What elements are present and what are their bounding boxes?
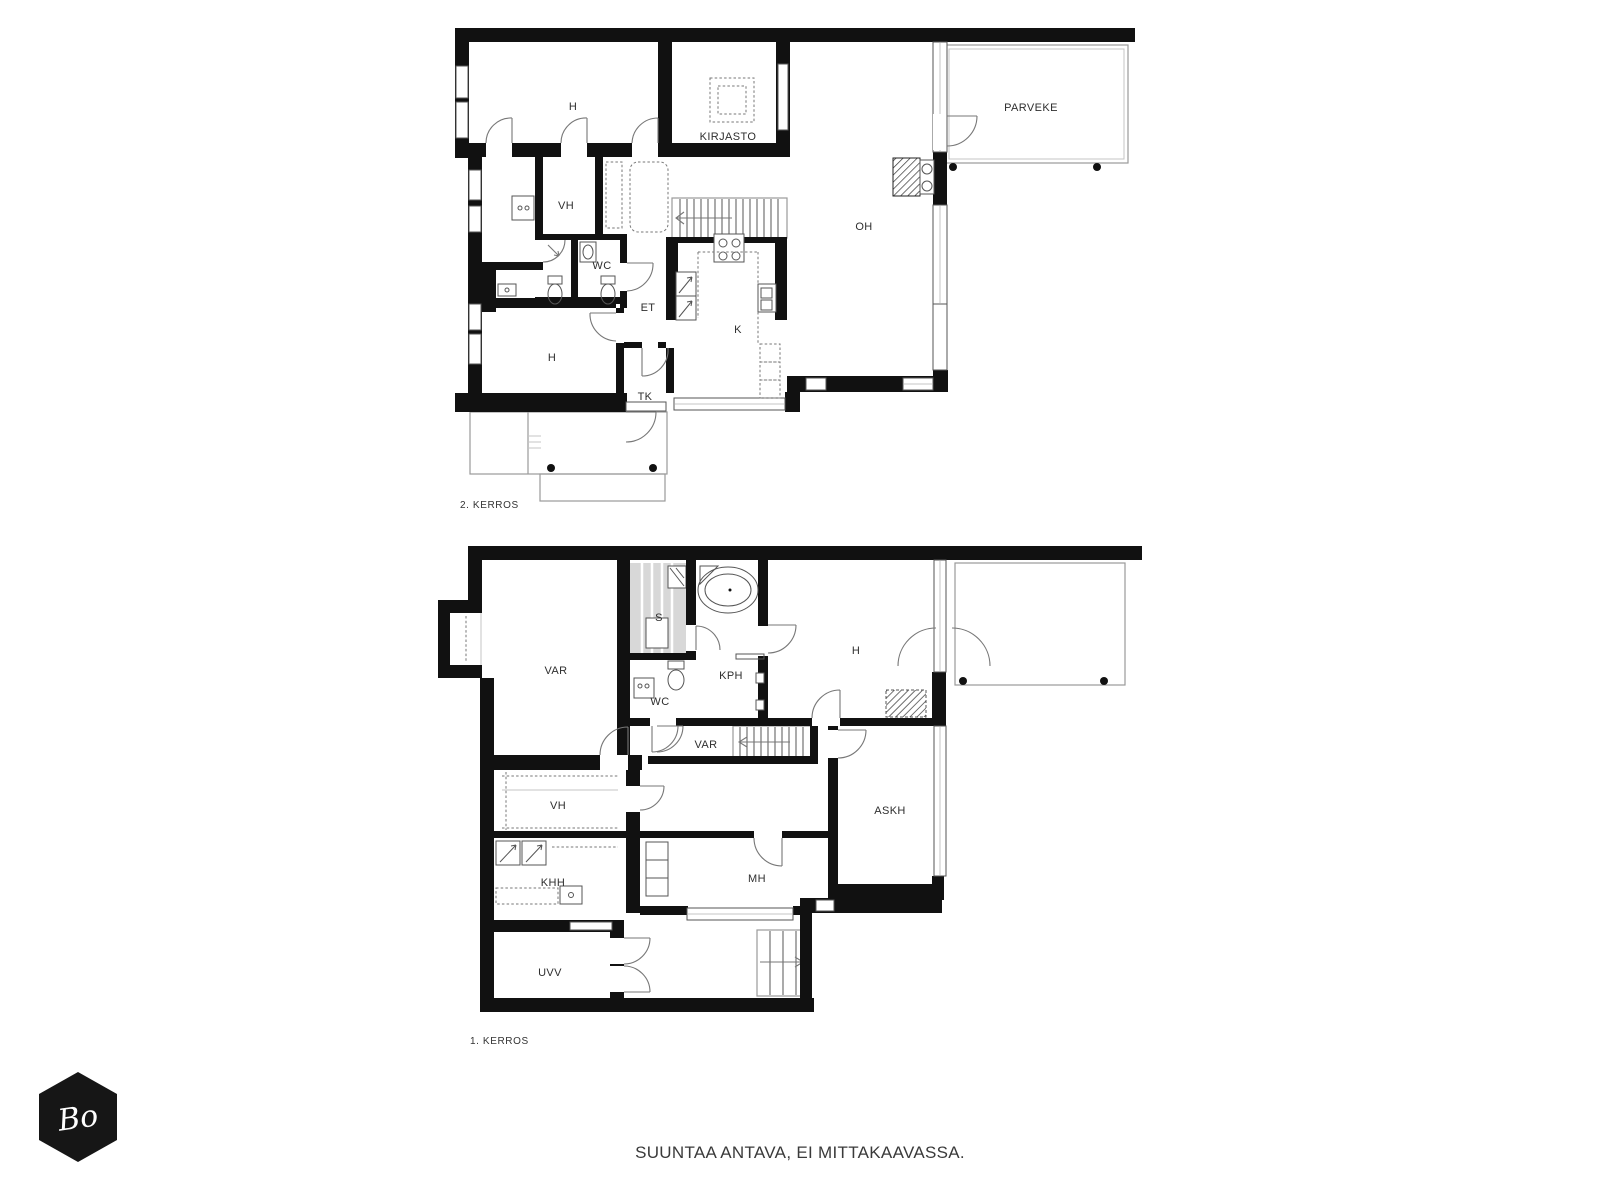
staircase-upper bbox=[672, 198, 787, 238]
disclaimer-text: SUUNTAA ANTAVA, EI MITTAKAAVASSA. bbox=[0, 1143, 1600, 1163]
fixtures-lower-floor bbox=[496, 566, 926, 904]
terrace-outline-lower bbox=[955, 563, 1125, 685]
room-label-vh-upper: VH bbox=[558, 200, 574, 212]
logo-text: Bo bbox=[55, 1098, 101, 1138]
room-label-tk: TK bbox=[638, 391, 653, 403]
room-label-vh-lower: VH bbox=[550, 800, 566, 812]
room-label-h2-upper: H bbox=[548, 352, 556, 364]
sauna-benches bbox=[630, 563, 686, 653]
room-label-kph: KPH bbox=[719, 670, 743, 682]
room-label-mh: MH bbox=[748, 873, 766, 885]
room-label-s: S bbox=[655, 612, 663, 624]
room-label-h-lower: H bbox=[852, 645, 860, 657]
sink-icon bbox=[634, 678, 654, 698]
fireplace-hatch bbox=[893, 158, 920, 196]
room-label-var-small: VAR bbox=[694, 739, 717, 751]
room-label-k: K bbox=[734, 324, 742, 336]
room-label-wc-lower: WC bbox=[650, 696, 669, 708]
floor-plan-2-kerros: H KIRJASTO PARVEKE VH WC ET K OH H TK 2.… bbox=[455, 28, 1135, 511]
shower-icon bbox=[543, 240, 565, 262]
windows-upper-floor bbox=[456, 42, 947, 411]
room-label-h-upper: H bbox=[569, 101, 577, 113]
floorplan-page: H KIRJASTO PARVEKE VH WC ET K OH H TK 2.… bbox=[0, 0, 1600, 1200]
doors-lower-floor bbox=[600, 625, 990, 992]
room-label-et: ET bbox=[641, 302, 656, 314]
walls-upper-floor bbox=[455, 28, 1135, 412]
sink-icon bbox=[512, 196, 534, 220]
room-label-parveke: PARVEKE bbox=[1004, 102, 1058, 114]
staircase-lower bbox=[733, 726, 811, 757]
sink-icon bbox=[498, 284, 516, 296]
room-label-askh: ASKH bbox=[874, 805, 906, 817]
room-label-kirjasto: KIRJASTO bbox=[700, 131, 757, 143]
toilet-icon bbox=[668, 670, 684, 690]
room-label-var-big: VAR bbox=[544, 665, 567, 677]
fireplace-hatch bbox=[886, 690, 926, 717]
floor-plan-1-kerros: VAR S KPH WC H VAR VH ASKH KHH MH UVV 1.… bbox=[438, 546, 1142, 1047]
walls-lower-floor bbox=[438, 546, 1142, 1012]
floor-label-2-kerros: 2. KERROS bbox=[460, 500, 519, 511]
floor-plan-drawing: H KIRJASTO PARVEKE VH WC ET K OH H TK 2.… bbox=[0, 0, 1600, 1200]
room-label-khh: KHH bbox=[541, 877, 565, 889]
floor-label-1-kerros: 1. KERROS bbox=[470, 1036, 529, 1047]
room-label-uvv: UVV bbox=[538, 967, 562, 979]
room-label-wc-upper: WC bbox=[592, 260, 611, 272]
room-label-oh: OH bbox=[855, 221, 872, 233]
